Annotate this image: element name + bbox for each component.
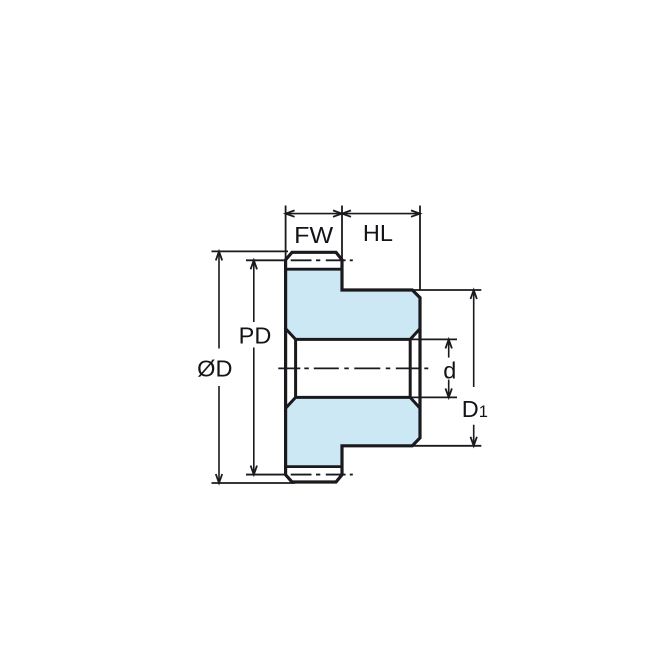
- svg-text:ØD: ØD: [197, 356, 232, 382]
- svg-text:d: d: [443, 358, 456, 384]
- svg-text:HL: HL: [363, 220, 393, 246]
- svg-text:PD: PD: [239, 322, 272, 348]
- svg-text:FW: FW: [294, 222, 334, 248]
